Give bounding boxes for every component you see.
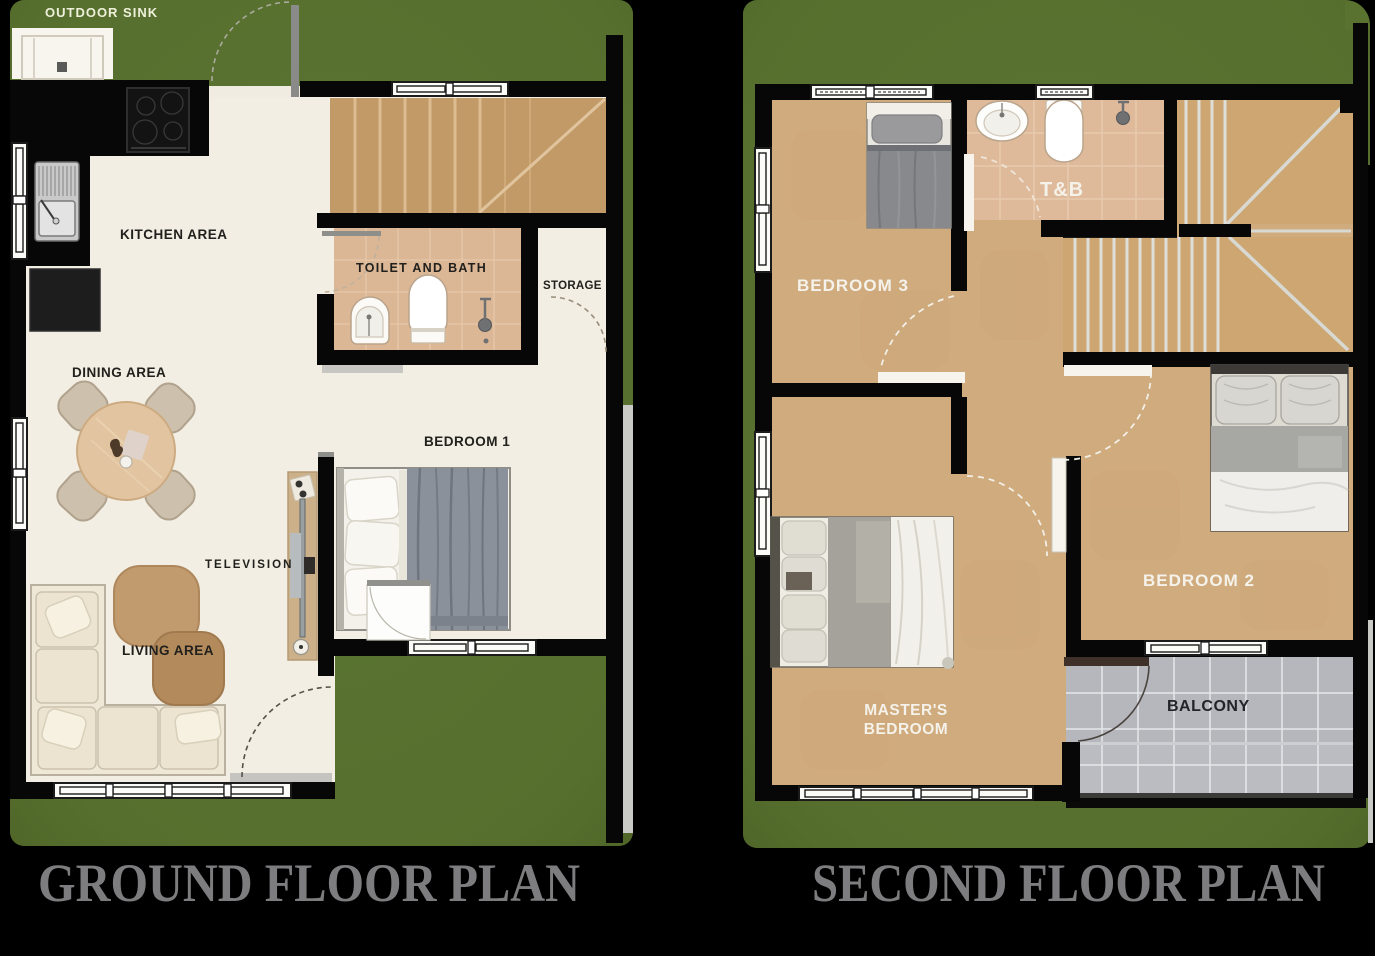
svg-text:KITCHEN AREA: KITCHEN AREA bbox=[120, 227, 228, 242]
svg-text:STORAGE: STORAGE bbox=[543, 280, 602, 292]
svg-text:T&B: T&B bbox=[1040, 179, 1084, 201]
svg-text:BEDROOM 3: BEDROOM 3 bbox=[797, 276, 909, 295]
svg-text:DINING AREA: DINING AREA bbox=[72, 365, 166, 380]
svg-text:BALCONY: BALCONY bbox=[1167, 698, 1250, 715]
svg-text:TOILET AND BATH: TOILET AND BATH bbox=[356, 261, 487, 275]
svg-text:BEDROOM: BEDROOM bbox=[864, 721, 948, 738]
svg-text:SECOND FLOOR PLAN: SECOND FLOOR PLAN bbox=[812, 853, 1325, 913]
svg-text:LIVING AREA: LIVING AREA bbox=[122, 643, 214, 658]
svg-text:OUTDOOR SINK: OUTDOOR SINK bbox=[45, 5, 158, 20]
svg-text:GROUND FLOOR PLAN: GROUND FLOOR PLAN bbox=[38, 853, 580, 913]
svg-text:MASTER'S: MASTER'S bbox=[864, 702, 947, 719]
svg-text:TELEVISION: TELEVISION bbox=[205, 559, 293, 571]
svg-text:BEDROOM 1: BEDROOM 1 bbox=[424, 434, 510, 449]
svg-text:BEDROOM 2: BEDROOM 2 bbox=[1143, 571, 1255, 590]
